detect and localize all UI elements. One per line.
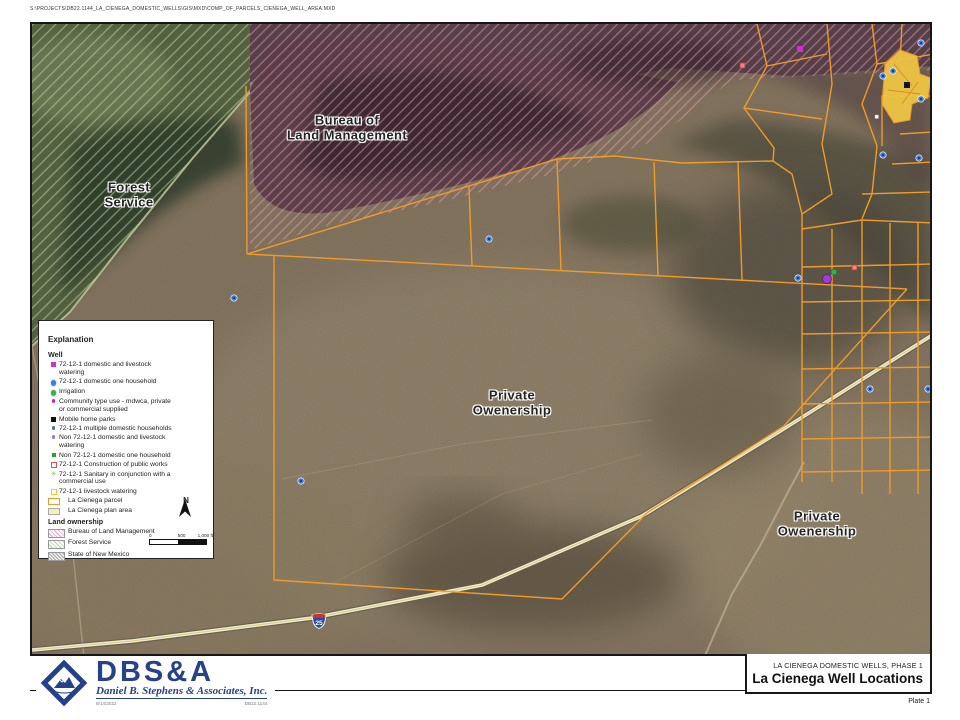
legend-item: Community type use - mdwca, private or c… xyxy=(48,398,209,414)
well-construction-public-works xyxy=(852,265,857,270)
legend-box: Explanation Well 72-12-1 domestic and li… xyxy=(38,320,214,559)
legend-item: 72-12-1 domestic and livestock watering xyxy=(48,361,209,377)
legend-item: Non 72-12-1 domestic one household xyxy=(48,452,209,460)
scale-bar-cells xyxy=(149,539,207,545)
logo-date: 9/14/2022 xyxy=(96,701,116,706)
non-7212-one-household-marker-icon xyxy=(52,453,56,457)
well-mobile-home-park xyxy=(904,82,910,88)
well-small-white xyxy=(875,115,879,119)
well-irrigation xyxy=(831,269,837,275)
legend-title: Explanation xyxy=(48,335,209,344)
mobile-home-parks-marker-icon xyxy=(51,417,56,422)
construction-public-works-marker-icon xyxy=(51,462,57,468)
well-community-type xyxy=(823,275,832,284)
map-title: La Cienega Well Locations xyxy=(752,671,923,686)
logo-acronym: DBS&A xyxy=(96,657,267,687)
livestock-watering-marker-icon xyxy=(51,489,57,495)
scale-bar: 0 500 1,000 ft xyxy=(149,533,213,545)
logo-job-number: DB22.1144 xyxy=(245,701,268,706)
state-of-new-mexico-hatch-swatch xyxy=(48,552,65,561)
legend-item: 72-12-1 Sanitary in conjunction with a c… xyxy=(48,471,209,487)
legend-item: Mobile home parks xyxy=(48,416,209,424)
legend-item: 72-12-1 livestock watering xyxy=(48,488,209,496)
irrigation-marker-icon xyxy=(50,389,58,397)
legend-item: Irrigation xyxy=(48,388,209,397)
sanitary-commercial-marker-icon xyxy=(51,472,57,477)
domestic-livestock-marker-icon xyxy=(51,362,56,367)
domestic-one-household-marker-icon xyxy=(50,379,58,387)
project-name: LA CIENEGA DOMESTIC WELLS, PHASE 1 xyxy=(773,661,923,670)
non-7212-domestic-livestock-marker-icon xyxy=(52,435,56,439)
la-cienega-plan-area-swatch xyxy=(48,508,60,515)
well-domestic-livestock xyxy=(797,46,803,52)
community-type-marker-icon xyxy=(52,399,56,403)
map-frame: 25 Forest Service Bureau of Land Managem… xyxy=(30,22,932,656)
blm-hatch-swatch xyxy=(48,529,65,538)
la-cienega-parcel-swatch xyxy=(48,498,60,505)
legend-item: State of New Mexico xyxy=(48,551,209,561)
north-arrow: N xyxy=(175,499,197,505)
forest-service-hatch-swatch xyxy=(48,540,65,549)
legend-well-header: Well xyxy=(48,350,209,359)
legend-item: 72-12-1 multiple domestic households xyxy=(48,425,209,433)
document-file-path: S:\PROJECTS\DB22.1144_LA_CIENEGA_DOMESTI… xyxy=(30,6,335,12)
satellite-map: 25 Forest Service Bureau of Land Managem… xyxy=(32,24,930,654)
well-construction-public-works xyxy=(740,63,745,68)
multiple-domestic-marker-icon xyxy=(52,426,56,430)
title-block: LA CIENEGA DOMESTIC WELLS, PHASE 1 La Ci… xyxy=(745,654,932,694)
plate-number: Plate 1 xyxy=(745,698,930,705)
dbsa-diamond-icon xyxy=(38,657,90,709)
legend-item: 72-12-1 Construction of public works xyxy=(48,461,209,469)
dbsa-logo: DBS&A Daniel B. Stephens & Associates, I… xyxy=(36,657,275,713)
shield-number: 25 xyxy=(315,620,323,627)
logo-company-name: Daniel B. Stephens & Associates, Inc. xyxy=(96,685,267,699)
north-arrow-icon xyxy=(175,499,195,519)
legend-item: Non 72-12-1 domestic and livestock water… xyxy=(48,434,209,450)
legend-item: 72-12-1 domestic one household xyxy=(48,378,209,387)
